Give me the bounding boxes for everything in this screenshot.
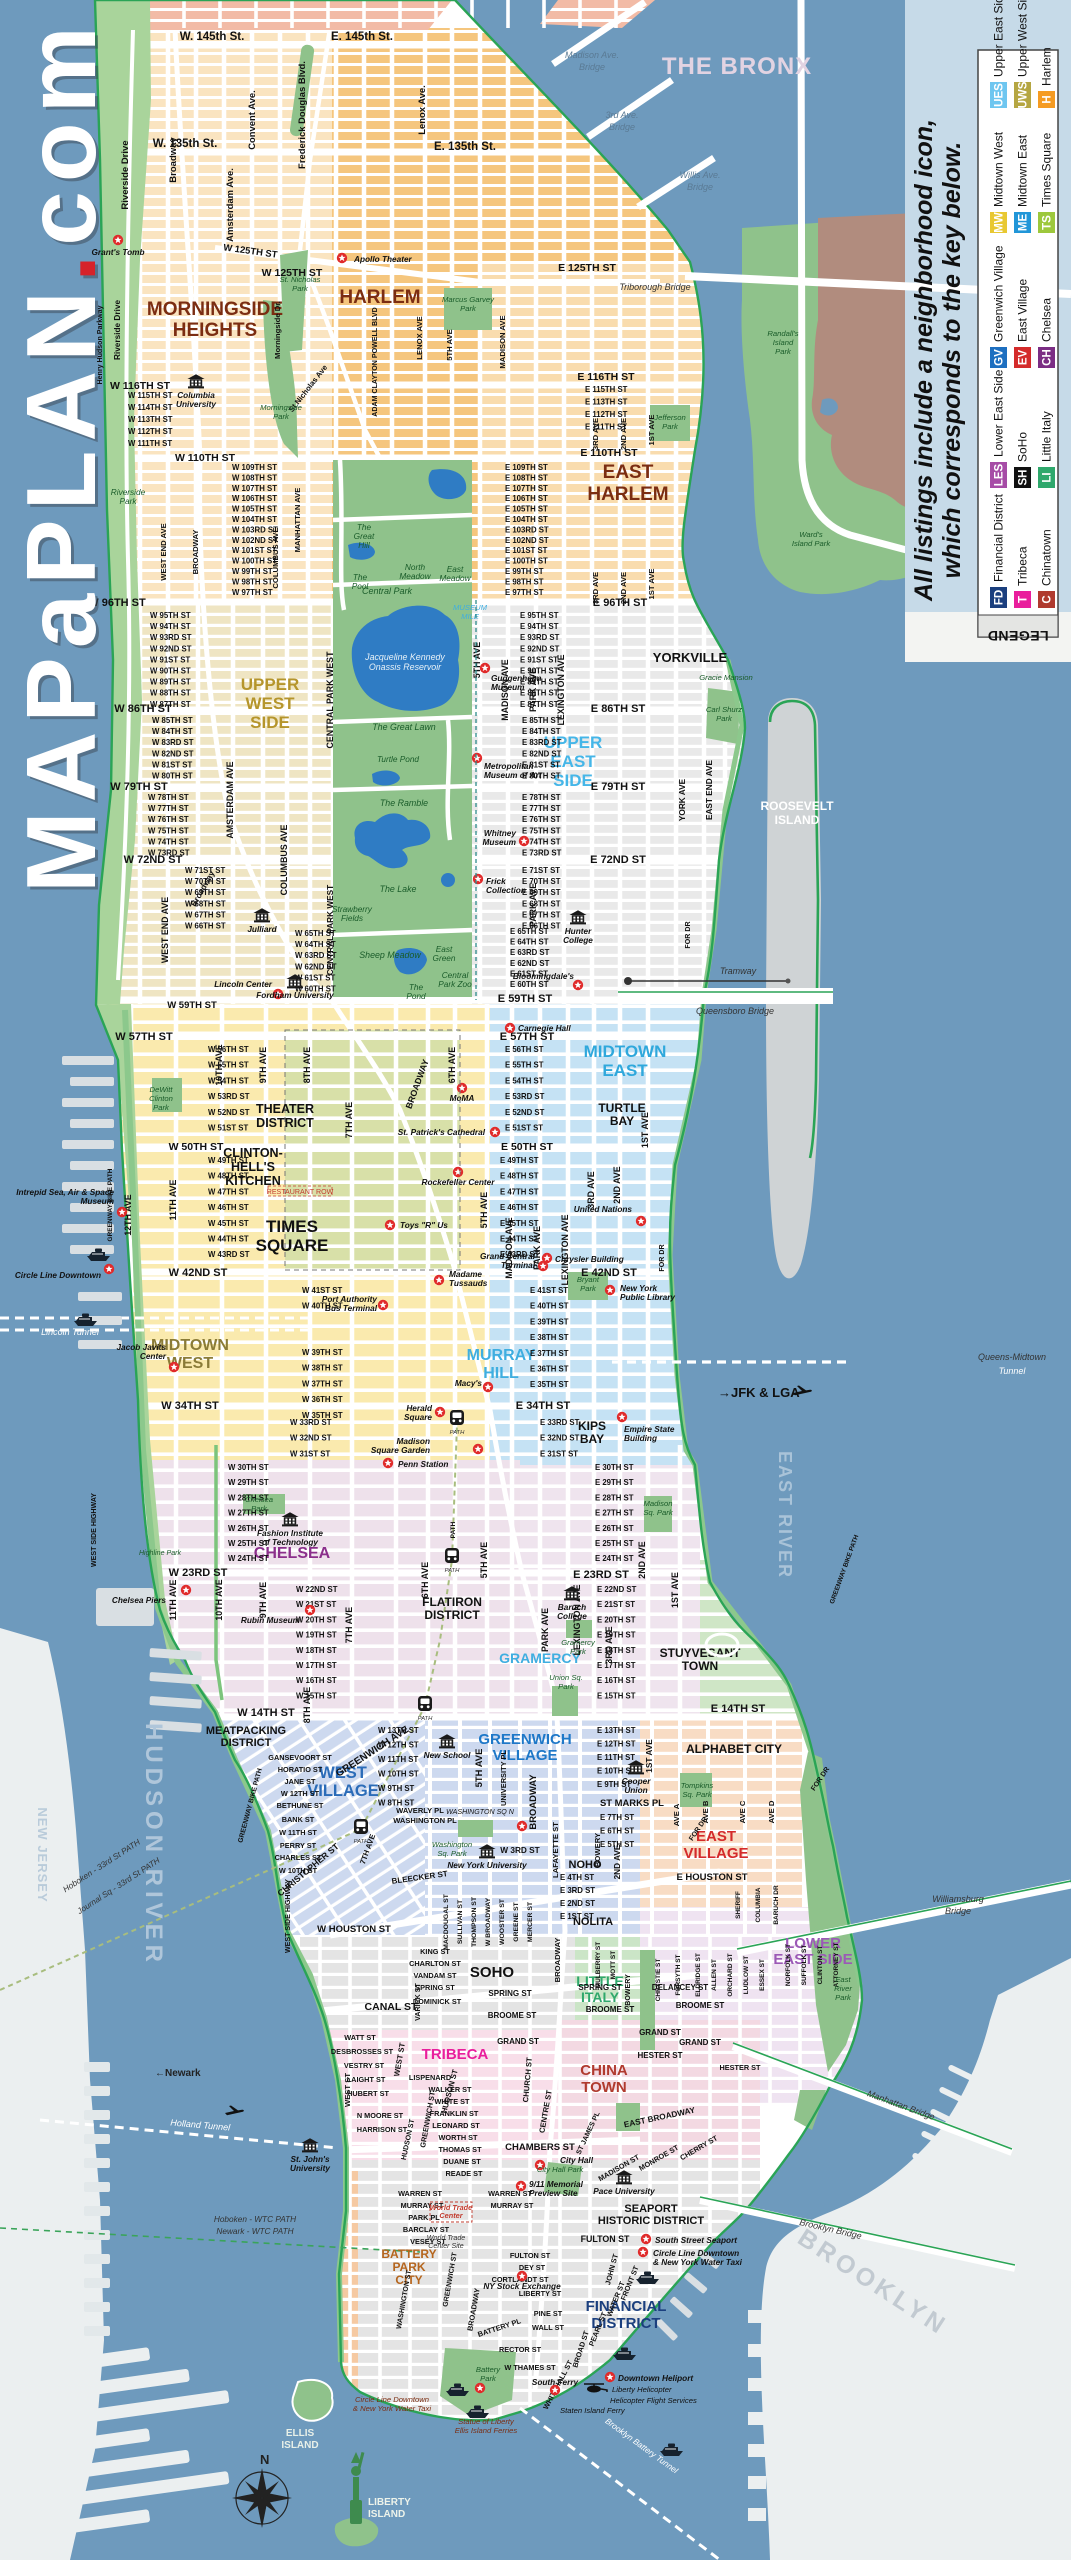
svg-text:THOMAS ST: THOMAS ST [438, 2145, 482, 2154]
svg-text:NEW JERSEY: NEW JERSEY [35, 1807, 50, 1902]
svg-text:Little Italy: Little Italy [1040, 411, 1054, 462]
svg-text:8TH AVE: 8TH AVE [302, 1047, 312, 1083]
svg-text:W 49TH ST: W 49TH ST [208, 1156, 249, 1165]
svg-text:E 33RD ST: E 33RD ST [540, 1418, 580, 1427]
svg-text:W 52ND ST: W 52ND ST [208, 1108, 250, 1117]
svg-text:E 76TH ST: E 76TH ST [522, 815, 561, 824]
svg-text:EV: EV [1018, 350, 1030, 366]
svg-text:Sq. Park: Sq. Park [643, 1508, 674, 1517]
svg-text:GREENWICH: GREENWICH [478, 1731, 571, 1748]
svg-text:E 11TH ST: E 11TH ST [597, 1753, 635, 1762]
svg-text:Staten Island Ferry: Staten Island Ferry [560, 2406, 626, 2415]
svg-text:City Hall: City Hall [560, 2156, 594, 2165]
svg-text:Chelsea Piers: Chelsea Piers [112, 1596, 167, 1605]
svg-text:5TH AVE: 5TH AVE [445, 329, 454, 360]
svg-text:Park: Park [570, 1647, 587, 1656]
svg-text:E 19TH ST: E 19TH ST [597, 1631, 636, 1640]
svg-text:WAVERLY PL: WAVERLY PL [396, 1806, 444, 1815]
svg-text:W 59TH ST: W 59TH ST [167, 1000, 217, 1011]
svg-text:E 36TH ST: E 36TH ST [530, 1365, 569, 1374]
svg-text:GRAND ST: GRAND ST [679, 2038, 721, 2047]
svg-text:W 23RD ST: W 23RD ST [169, 1567, 228, 1579]
svg-text:MEATPACKING: MEATPACKING [206, 1725, 286, 1737]
svg-text:W 19TH ST: W 19TH ST [296, 1631, 337, 1640]
svg-text:E 26TH ST: E 26TH ST [595, 1524, 634, 1533]
svg-text:MAPaPLAN.com: MAPaPLAN.com [6, 17, 116, 893]
svg-text:Park Zoo: Park Zoo [438, 980, 472, 989]
svg-text:Circle Line Downtown: Circle Line Downtown [15, 1271, 101, 1280]
svg-text:Marcus Garvey: Marcus Garvey [442, 295, 495, 304]
svg-text:W 50TH ST: W 50TH ST [169, 1141, 224, 1153]
svg-text:The: The [353, 573, 368, 582]
svg-text:& New York Water Taxi: & New York Water Taxi [653, 2258, 743, 2267]
svg-text:W 81ST ST: W 81ST ST [152, 760, 192, 769]
svg-text:E 3RD ST: E 3RD ST [560, 1886, 595, 1895]
svg-text:E 64TH ST: E 64TH ST [510, 938, 549, 947]
svg-text:E 72ND ST: E 72ND ST [590, 854, 646, 866]
svg-text:W 74TH ST: W 74TH ST [148, 837, 189, 846]
svg-text:3rd Ave.: 3rd Ave. [605, 110, 638, 120]
svg-text:E. 145th St.: E. 145th St. [331, 31, 393, 43]
svg-text:E 86TH ST: E 86TH ST [591, 703, 646, 715]
svg-text:E 60TH ST: E 60TH ST [510, 980, 549, 989]
svg-text:E 6TH ST: E 6TH ST [600, 1827, 634, 1836]
svg-text:Collection: Collection [486, 886, 526, 895]
svg-text:World Trade: World Trade [427, 2234, 465, 2242]
svg-text:Metropolitan: Metropolitan [484, 762, 534, 771]
svg-text:E 13TH ST: E 13TH ST [597, 1726, 636, 1735]
svg-text:E. 135th St.: E. 135th St. [434, 141, 496, 153]
svg-text:7TH AVE: 7TH AVE [344, 1607, 354, 1643]
svg-text:RESTAURANT ROW: RESTAURANT ROW [267, 1188, 334, 1196]
svg-text:Park: Park [580, 1284, 597, 1293]
svg-text:E 17TH ST: E 17TH ST [597, 1661, 636, 1670]
svg-text:Strawberry: Strawberry [332, 905, 373, 914]
svg-text:E 65TH ST: E 65TH ST [510, 927, 549, 936]
svg-text:Randall's: Randall's [767, 329, 798, 338]
svg-text:Times Square: Times Square [1040, 132, 1054, 207]
svg-text:W 108TH ST: W 108TH ST [232, 473, 277, 482]
svg-text:W 111TH ST: W 111TH ST [128, 439, 172, 448]
svg-text:BARCLAY ST: BARCLAY ST [403, 2225, 450, 2234]
svg-text:BOWERY: BOWERY [593, 1833, 602, 1867]
svg-text:Triborough Bridge: Triborough Bridge [619, 282, 690, 292]
svg-text:E 107TH ST: E 107TH ST [505, 484, 548, 493]
svg-text:W 105TH ST: W 105TH ST [232, 505, 277, 514]
svg-text:W 45TH ST: W 45TH ST [208, 1219, 249, 1228]
svg-text:Turtle Pond: Turtle Pond [377, 755, 419, 764]
svg-text:E 46TH ST: E 46TH ST [500, 1203, 539, 1212]
svg-text:Sheep Meadow: Sheep Meadow [359, 950, 421, 960]
svg-text:PERRY ST: PERRY ST [280, 1841, 317, 1850]
svg-text:H: H [1042, 95, 1054, 103]
svg-text:LEXINGTON AVE: LEXINGTON AVE [560, 1214, 570, 1285]
svg-text:BARUCH DR: BARUCH DR [773, 1885, 780, 1925]
svg-text:ALLEN ST: ALLEN ST [711, 1959, 718, 1991]
svg-text:WASHINGTON SQ N: WASHINGTON SQ N [446, 1808, 515, 1816]
svg-text:Pond: Pond [406, 992, 426, 1001]
svg-text:E 78TH ST: E 78TH ST [522, 793, 561, 802]
svg-text:E 94TH ST: E 94TH ST [520, 622, 559, 631]
svg-text:W 67TH ST: W 67TH ST [185, 910, 226, 919]
svg-text:AVE C: AVE C [738, 1800, 747, 1823]
svg-text:HESTER ST: HESTER ST [638, 2051, 683, 2060]
svg-text:W 80TH ST: W 80TH ST [152, 772, 193, 781]
svg-text:1ST AVE: 1ST AVE [645, 1739, 654, 1773]
svg-text:GREENE ST: GREENE ST [513, 1901, 520, 1941]
svg-text:W 53RD ST: W 53RD ST [208, 1092, 250, 1101]
svg-text:E 38TH ST: E 38TH ST [530, 1333, 569, 1342]
svg-text:BROOME ST: BROOME ST [488, 2011, 537, 2020]
svg-text:Fields: Fields [341, 914, 363, 923]
svg-text:VARICK ST: VARICK ST [414, 1983, 422, 2021]
svg-text:Center: Center [439, 2211, 463, 2220]
svg-text:E 100TH ST: E 100TH ST [505, 557, 548, 566]
svg-text:Union Sq.: Union Sq. [549, 1673, 583, 1682]
svg-text:Pace University: Pace University [593, 2187, 655, 2196]
svg-text:FLATIRON: FLATIRON [422, 1595, 482, 1609]
svg-text:W 30TH ST: W 30TH ST [228, 1463, 269, 1472]
svg-text:ISLAND: ISLAND [775, 813, 820, 827]
svg-text:HESTER ST: HESTER ST [719, 2063, 761, 2072]
svg-text:Green: Green [433, 954, 456, 963]
svg-text:WARREN ST: WARREN ST [488, 2189, 532, 2198]
svg-text:PATH: PATH [450, 1430, 466, 1436]
svg-text:Sq. Park: Sq. Park [437, 1849, 468, 1858]
svg-text:UPPER: UPPER [241, 675, 300, 694]
svg-text:Jacqueline Kennedy: Jacqueline Kennedy [364, 652, 445, 662]
svg-text:COLUMBUS AVE: COLUMBUS AVE [271, 527, 280, 588]
svg-text:HARRISON ST: HARRISON ST [357, 2125, 408, 2134]
svg-text:W 10TH ST: W 10TH ST [378, 1770, 419, 1779]
svg-text:CANAL ST: CANAL ST [365, 2001, 418, 2013]
svg-text:Bryant: Bryant [577, 1275, 600, 1284]
svg-text:E 41ST ST: E 41ST ST [530, 1286, 568, 1295]
svg-text:KIPS: KIPS [578, 1419, 606, 1433]
svg-text:E 32ND ST: E 32ND ST [540, 1434, 580, 1443]
svg-text:River: River [834, 1984, 852, 1993]
svg-text:YORKVILLE: YORKVILLE [653, 650, 728, 665]
svg-text:DEY ST: DEY ST [519, 2263, 546, 2272]
svg-text:Chrysler Building: Chrysler Building [555, 1255, 624, 1264]
svg-text:E 71ST ST: E 71ST ST [522, 866, 560, 875]
svg-text:E 91ST ST: E 91ST ST [520, 655, 558, 664]
svg-text:Amsterdam Ave.: Amsterdam Ave. [224, 168, 235, 242]
svg-text:HARLEM: HARLEM [587, 484, 668, 505]
svg-text:MURRAY ST: MURRAY ST [491, 2201, 534, 2210]
svg-text:MADISON AVE: MADISON AVE [498, 315, 507, 368]
svg-text:E 83RD ST: E 83RD ST [522, 738, 562, 747]
svg-text:EAST: EAST [603, 462, 654, 483]
svg-text:Helicopter Flight Services: Helicopter Flight Services [610, 2396, 697, 2405]
svg-text:6TH AVE: 6TH AVE [447, 1047, 457, 1083]
svg-text:3RD AVE: 3RD AVE [604, 1626, 614, 1663]
svg-text:Madison: Madison [644, 1499, 673, 1508]
svg-text:Herald: Herald [406, 1404, 433, 1413]
svg-text:Whitney: Whitney [484, 829, 516, 838]
svg-text:2ND AVE: 2ND AVE [619, 572, 628, 604]
svg-text:College: College [557, 1612, 587, 1621]
svg-text:MACDOUGAL ST: MACDOUGAL ST [443, 1893, 450, 1949]
svg-text:W 76TH ST: W 76TH ST [148, 815, 189, 824]
svg-text:WATT ST: WATT ST [344, 2033, 376, 2042]
svg-text:Toys "R" Us: Toys "R" Us [400, 1221, 448, 1230]
svg-text:Lower East Side: Lower East Side [992, 369, 1006, 457]
svg-text:E 24TH ST: E 24TH ST [595, 1554, 634, 1563]
svg-text:E 29TH ST: E 29TH ST [595, 1478, 634, 1487]
svg-text:W 16TH ST: W 16TH ST [296, 1676, 337, 1685]
svg-text:E 4TH ST: E 4TH ST [560, 1873, 594, 1882]
svg-text:Tramway: Tramway [720, 966, 757, 976]
svg-text:E 112TH ST: E 112TH ST [585, 410, 628, 419]
svg-text:Lenox Ave.: Lenox Ave. [416, 85, 427, 135]
svg-text:W 84TH ST: W 84TH ST [152, 727, 193, 736]
svg-text:Center Site: Center Site [428, 2242, 463, 2250]
svg-text:W. 135th St.: W. 135th St. [153, 138, 218, 150]
svg-text:E 15TH ST: E 15TH ST [597, 1691, 636, 1700]
svg-text:ELLIS: ELLIS [286, 2428, 315, 2439]
svg-text:E 55TH ST: E 55TH ST [505, 1061, 544, 1070]
svg-text:ME: ME [1018, 214, 1030, 232]
svg-text:E 47TH ST: E 47TH ST [500, 1187, 539, 1196]
svg-text:MOTT ST: MOTT ST [610, 1951, 617, 1979]
svg-text:DISTRICT: DISTRICT [424, 1608, 480, 1622]
svg-text:W 32ND ST: W 32ND ST [290, 1434, 332, 1443]
svg-text:GRAND ST: GRAND ST [639, 2028, 681, 2037]
svg-text:HUDSON RIVER: HUDSON RIVER [140, 1723, 167, 1967]
svg-text:W 77TH ST: W 77TH ST [148, 804, 189, 813]
svg-text:DeWitt: DeWitt [150, 1085, 174, 1094]
svg-text:ISLAND: ISLAND [368, 2509, 405, 2520]
svg-text:The: The [409, 983, 424, 992]
svg-text:BROADWAY: BROADWAY [527, 1774, 538, 1830]
svg-text:New York University: New York University [447, 1861, 527, 1870]
svg-text:Hill: Hill [358, 541, 371, 550]
svg-text:Gramercy: Gramercy [561, 1638, 596, 1647]
svg-text:Museum of Art: Museum of Art [484, 771, 543, 780]
svg-text:E 104TH ST: E 104TH ST [505, 515, 548, 524]
svg-text:2ND AVE: 2ND AVE [619, 418, 628, 450]
svg-text:North: North [405, 563, 426, 572]
svg-text:9TH AVE: 9TH AVE [258, 1047, 268, 1083]
svg-text:SH: SH [1018, 470, 1030, 486]
svg-text:WEST SIDE HIGHWAY: WEST SIDE HIGHWAY [90, 1493, 98, 1567]
svg-text:NY Stock Exchange: NY Stock Exchange [483, 2282, 561, 2291]
svg-text:Sq. Park: Sq. Park [682, 1790, 713, 1799]
svg-text:MANHATTAN AVE: MANHATTAN AVE [293, 488, 302, 553]
svg-text:N: N [260, 2452, 269, 2467]
svg-text:E 56TH ST: E 56TH ST [505, 1045, 544, 1054]
svg-text:Gracie Mansion: Gracie Mansion [699, 673, 753, 682]
svg-text:E 85TH ST: E 85TH ST [522, 716, 561, 725]
svg-text:Chelsea: Chelsea [245, 1495, 273, 1504]
svg-text:University: University [290, 2164, 330, 2173]
svg-text:which corresponds to the key b: which corresponds to the key below. [938, 142, 966, 579]
svg-text:Park: Park [120, 497, 138, 506]
svg-text:FOR DR: FOR DR [658, 1244, 666, 1271]
svg-text:Apollo Theater: Apollo Theater [353, 255, 413, 264]
svg-text:MORNINGSIDE: MORNINGSIDE [147, 299, 283, 320]
svg-text:Harlem: Harlem [1040, 47, 1054, 86]
svg-text:WEST ST: WEST ST [343, 2073, 352, 2107]
svg-text:Park: Park [292, 284, 309, 293]
svg-text:CHINA: CHINA [580, 2062, 628, 2079]
svg-text:Port Authority: Port Authority [322, 1295, 378, 1304]
svg-text:W 66TH ST: W 66TH ST [185, 922, 226, 931]
svg-text:Queens-Midtown: Queens-Midtown [978, 1352, 1046, 1362]
svg-text:E 73RD ST: E 73RD ST [522, 849, 562, 858]
svg-text:VILLAGE: VILLAGE [683, 1845, 748, 1862]
svg-text:E 25TH ST: E 25TH ST [595, 1539, 634, 1548]
svg-text:Lincoln Center: Lincoln Center [214, 980, 273, 989]
svg-text:The Great Lawn: The Great Lawn [372, 722, 435, 732]
svg-text:5TH AVE: 5TH AVE [473, 1749, 484, 1788]
svg-text:Bloomingdale's: Bloomingdale's [513, 972, 575, 981]
svg-text:E 37TH ST: E 37TH ST [530, 1349, 569, 1358]
svg-text:BETHUNE ST: BETHUNE ST [277, 1801, 324, 1810]
svg-text:Madison: Madison [397, 1437, 430, 1446]
svg-text:Rockefeller Center: Rockefeller Center [422, 1178, 496, 1187]
svg-text:Jacob Javits: Jacob Javits [116, 1343, 166, 1352]
svg-text:United Nations: United Nations [574, 1205, 633, 1214]
svg-text:Upper East Side: Upper East Side [992, 0, 1006, 77]
svg-text:9TH AVE: 9TH AVE [258, 1582, 268, 1618]
svg-text:1ST AVE: 1ST AVE [640, 1112, 650, 1148]
svg-text:W 33RD ST: W 33RD ST [290, 1418, 332, 1427]
svg-text:W 46TH ST: W 46TH ST [208, 1203, 249, 1212]
svg-text:Bridge: Bridge [945, 1906, 971, 1916]
svg-text:W HOUSTON ST: W HOUSTON ST [317, 1924, 391, 1935]
svg-text:Square: Square [404, 1413, 432, 1422]
svg-text:Terminal: Terminal [501, 1261, 536, 1270]
svg-text:E 51ST ST: E 51ST ST [505, 1124, 543, 1133]
svg-text:E 115TH ST: E 115TH ST [585, 385, 628, 394]
svg-text:Julliard: Julliard [247, 925, 277, 934]
svg-text:W 88TH ST: W 88TH ST [150, 689, 191, 698]
svg-text:ROOSEVELT: ROOSEVELT [760, 799, 834, 813]
svg-text:E 63RD ST: E 63RD ST [510, 948, 550, 957]
svg-text:Guggenheim: Guggenheim [491, 674, 541, 683]
svg-text:WARREN ST: WARREN ST [398, 2189, 442, 2198]
svg-text:Park: Park [716, 714, 733, 723]
svg-text:E 110TH ST: E 110TH ST [580, 447, 638, 459]
svg-text:W 3RD ST: W 3RD ST [500, 1846, 539, 1855]
svg-text:Central: Central [442, 971, 470, 980]
svg-text:E 50TH ST: E 50TH ST [501, 1141, 554, 1153]
svg-text:Circle Line Downtown: Circle Line Downtown [653, 2249, 739, 2258]
svg-text:E 27TH ST: E 27TH ST [595, 1509, 634, 1518]
svg-text:St. John's: St. John's [290, 2155, 330, 2164]
svg-text:Museum: Museum [491, 683, 524, 692]
svg-text:FULTON ST: FULTON ST [510, 2251, 551, 2260]
svg-text:Island Park: Island Park [792, 539, 831, 548]
svg-text:THOMPSON ST: THOMPSON ST [471, 1896, 478, 1947]
svg-text:Upper West Side: Upper West Side [1016, 0, 1030, 77]
svg-text:W 90TH ST: W 90TH ST [150, 667, 191, 676]
svg-text:MoMA: MoMA [450, 1094, 475, 1103]
svg-text:TIMES: TIMES [266, 1217, 318, 1236]
svg-text:W 12TH ST: W 12TH ST [281, 1789, 320, 1798]
svg-text:Meadow: Meadow [399, 572, 431, 581]
svg-text:Convent Ave.: Convent Ave. [246, 90, 257, 150]
svg-text:E 14TH ST: E 14TH ST [711, 1703, 766, 1715]
svg-text:PATH: PATH [445, 1568, 461, 1574]
svg-text:W 22ND ST: W 22ND ST [296, 1585, 338, 1594]
svg-text:E 88TH ST: E 88TH ST [520, 689, 559, 698]
svg-text:W 106TH ST: W 106TH ST [232, 494, 277, 503]
svg-text:Bridge: Bridge [579, 62, 605, 72]
svg-text:E 79TH ST: E 79TH ST [591, 781, 646, 793]
svg-text:CHRYSTIE ST: CHRYSTIE ST [655, 1959, 662, 2002]
svg-text:E 39TH ST: E 39TH ST [530, 1317, 569, 1326]
svg-text:Lincoln Tunnel: Lincoln Tunnel [41, 1327, 100, 1337]
svg-text:3RD AVE: 3RD AVE [586, 1171, 596, 1208]
svg-text:E 62ND ST: E 62ND ST [510, 959, 550, 968]
svg-text:Tribeca: Tribeca [1016, 546, 1030, 586]
svg-text:GRAND ST: GRAND ST [497, 2037, 539, 2046]
svg-text:E 49TH ST: E 49TH ST [500, 1156, 539, 1165]
svg-text:East Village: East Village [1016, 279, 1030, 342]
svg-text:E 106TH ST: E 106TH ST [505, 494, 548, 503]
svg-text:ELDRIDGE ST: ELDRIDGE ST [695, 1953, 702, 1997]
svg-text:WEST: WEST [245, 694, 295, 713]
svg-text:E 18TH ST: E 18TH ST [597, 1646, 636, 1655]
svg-text:10TH AVE: 10TH AVE [214, 1579, 224, 1620]
svg-text:Chelsea: Chelsea [1040, 298, 1054, 342]
svg-text:5TH AVE: 5TH AVE [479, 1192, 489, 1228]
svg-text:Macy's: Macy's [455, 1379, 483, 1388]
svg-text:W 29TH ST: W 29TH ST [228, 1478, 269, 1487]
svg-text:TRIBECA: TRIBECA [422, 2046, 489, 2063]
svg-text:8TH AVE: 8TH AVE [302, 1687, 312, 1723]
svg-text:College: College [563, 936, 593, 945]
svg-text:PINE ST: PINE ST [534, 2309, 563, 2318]
svg-text:WEST END AVE: WEST END AVE [159, 523, 168, 580]
svg-text:BAY: BAY [610, 1114, 634, 1128]
svg-text:FULTON ST: FULTON ST [581, 2234, 630, 2244]
svg-text:GANSEVOORT ST: GANSEVOORT ST [268, 1753, 332, 1762]
svg-text:COLUMBUS AVE: COLUMBUS AVE [279, 825, 289, 896]
svg-text:E 102ND ST: E 102ND ST [505, 536, 549, 545]
svg-text:Park: Park [775, 347, 792, 356]
svg-text:W 36TH ST: W 36TH ST [302, 1395, 343, 1404]
svg-text:E 105TH ST: E 105TH ST [505, 505, 548, 514]
svg-text:W 82ND ST: W 82ND ST [152, 749, 194, 758]
svg-text:Museum: Museum [81, 1197, 114, 1206]
svg-text:W 91ST ST: W 91ST ST [150, 655, 190, 664]
svg-text:Highline Park: Highline Park [139, 1549, 182, 1557]
svg-text:E 52ND ST: E 52ND ST [505, 1108, 545, 1117]
svg-text:W 97TH ST: W 97TH ST [232, 588, 273, 597]
svg-text:E 103RD ST: E 103RD ST [505, 525, 549, 534]
svg-text:University: University [176, 400, 216, 409]
svg-text:SEAPORT: SEAPORT [624, 2203, 677, 2215]
svg-text:PARK AVE: PARK AVE [528, 883, 538, 927]
svg-text:The Lake: The Lake [380, 884, 417, 894]
svg-text:SPRING ST: SPRING ST [488, 1989, 531, 1998]
svg-text:Liberty Helicopter: Liberty Helicopter [612, 2385, 672, 2394]
svg-text:Bridge: Bridge [687, 182, 713, 192]
svg-text:UES: UES [994, 83, 1006, 107]
svg-text:BROADWAY: BROADWAY [191, 530, 200, 575]
svg-text:W 42ND ST: W 42ND ST [169, 1267, 228, 1279]
svg-text:E 125TH ST: E 125TH ST [558, 262, 616, 274]
svg-text:LEXINGTON AVE: LEXINGTON AVE [556, 654, 566, 725]
svg-text:East: East [835, 1975, 851, 1984]
svg-text:HARLEM: HARLEM [339, 287, 420, 308]
svg-text:1ST AVE: 1ST AVE [647, 568, 656, 599]
svg-text:2ND AVE: 2ND AVE [637, 1541, 647, 1578]
